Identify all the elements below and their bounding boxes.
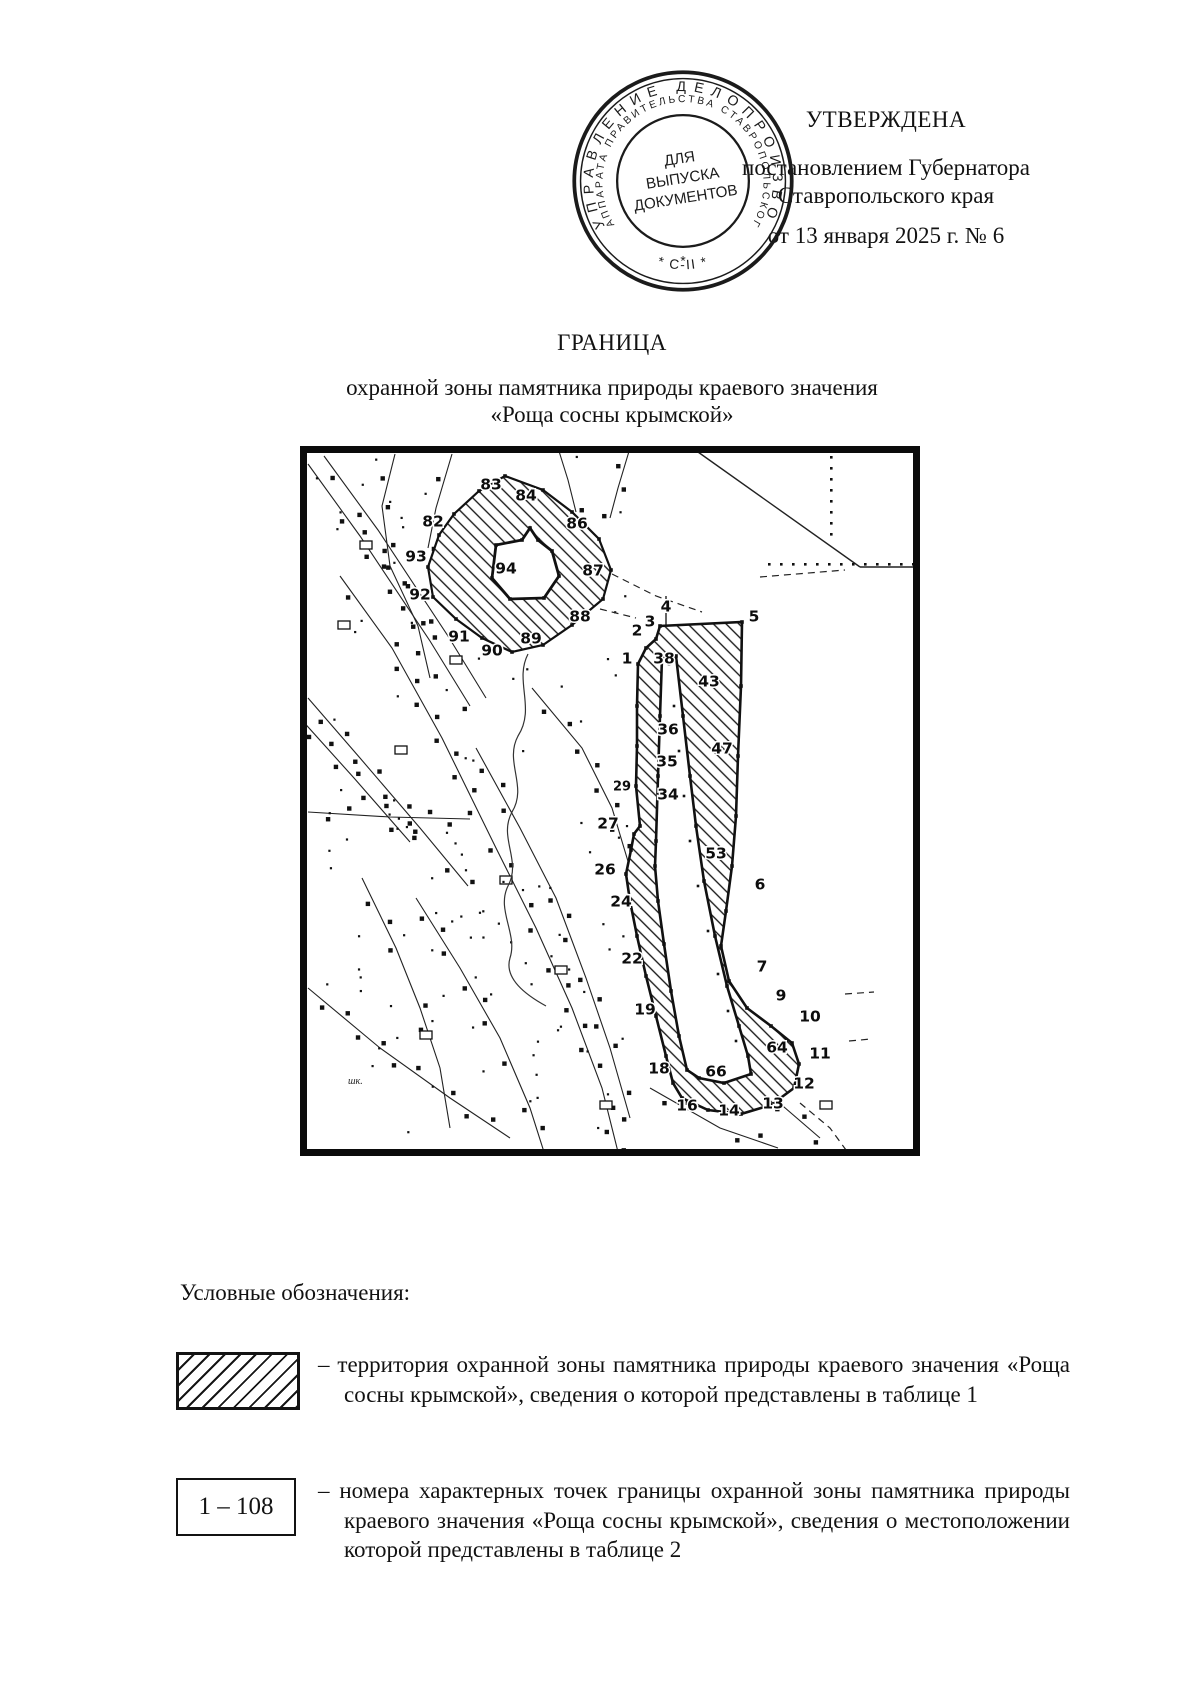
map-point-label: 10 [799,1008,821,1026]
map-point-label: 82 [422,513,444,531]
map-point-label: 11 [809,1045,831,1063]
map-point-label: 22 [621,950,643,968]
map-point-label: 3 [645,613,656,631]
map-point-label: 64 [766,1039,788,1057]
map-point-label: 66 [705,1063,727,1081]
map-point-label: 47 [711,740,733,758]
stamp-center-text: ДЛЯ ВЫПУСКА ДОКУМЕНТОВ [626,142,738,214]
map-point-label: 16 [676,1097,698,1115]
map-school-label: шк. [348,1076,363,1087]
map-point-label: 1 [622,650,633,668]
map-point-label: 2 [632,622,643,640]
legend-heading: Условные обозначения: [180,1280,410,1306]
map-point-label: 86 [566,515,588,533]
legend-point-range-label: 1 – 108 [199,1493,274,1521]
legend-item-2-text: – номера характерных точек границы охран… [318,1476,1070,1565]
map-point-label: 19 [634,1001,656,1019]
map-point-label: 6 [755,876,766,894]
page-title: ГРАНИЦА [180,330,1044,356]
map-point-label: 13 [762,1095,784,1113]
map-point-label: 9 [776,987,787,1005]
map-point-label: 18 [648,1060,670,1078]
svg-text:ДЛЯ: ДЛЯ [663,148,696,170]
subtitle-line1: охранной зоны памятника природы краевого… [180,374,1044,401]
map-point-label: 34 [657,786,679,804]
map-point-label: 12 [793,1075,815,1093]
map-point-label: 14 [718,1102,740,1120]
stamp-bottom-star: * [680,254,686,269]
map-point-label: 88 [569,608,591,626]
map-point-label: 7 [757,958,768,976]
office-stamp: УПРАВЛЕНИЕ ДЕЛОПРОИЗВОДСТВА АППАРАТА ПРА… [568,66,798,296]
map-point-label: 38 [653,650,675,668]
map-point-label: 27 [597,815,619,833]
map-point-label: 26 [594,861,616,879]
map-point-label: 87 [582,562,604,580]
subtitle-line2: «Роща сосны крымской» [180,401,1044,428]
legend-item-1-text: – территория охранной зоны памятника при… [318,1350,1070,1409]
map-point-label: 91 [448,628,470,646]
map-point-label: 35 [656,753,678,771]
stamp-seal-graphic: УПРАВЛЕНИЕ ДЕЛОПРОИЗВОДСТВА АППАРАТА ПРА… [568,66,798,296]
map-canvas: 8384828693948792889189904352138433647353… [300,446,920,1156]
map-point-label: 43 [698,673,720,691]
map-point-label: 92 [409,586,431,604]
map-point-label: 93 [405,548,427,566]
map-point-label: 5 [749,608,760,626]
map-point-label: 29 [613,780,631,795]
map-point-label: 89 [520,630,542,648]
boundary-map: 8384828693948792889189904352138433647353… [300,446,920,1156]
legend-hatched-swatch [176,1352,300,1410]
map-point-label: 24 [610,893,632,911]
map-point-label: 84 [515,487,537,505]
map-point-label: 53 [705,845,727,863]
map-point-label: 4 [661,598,672,616]
map-point-label: 36 [657,721,679,739]
map-point-label: 83 [480,476,502,494]
page-subtitle: охранной зоны памятника природы краевого… [180,374,1044,428]
legend-point-range-box: 1 – 108 [176,1478,296,1536]
map-point-label: 94 [495,560,517,578]
map-point-label: 90 [481,642,503,660]
